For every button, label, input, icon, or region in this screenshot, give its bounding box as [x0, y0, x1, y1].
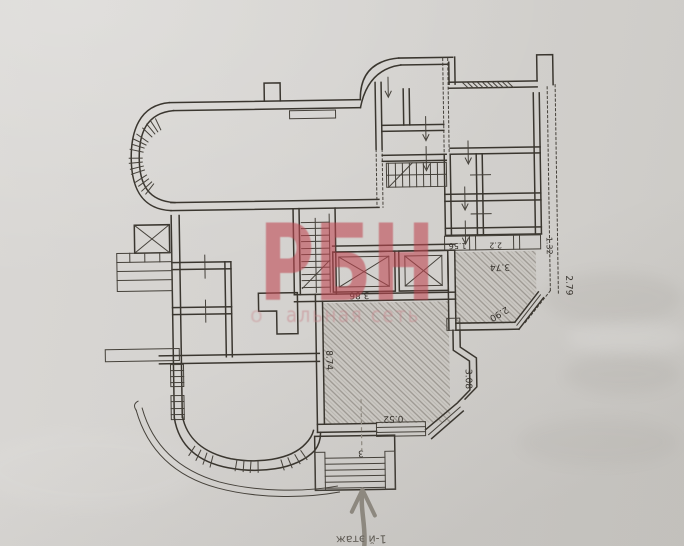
watermark: РБН о альная сеть	[250, 202, 435, 327]
dim-label-2-79: 2.79	[563, 275, 573, 295]
oval-hall	[128, 103, 175, 212]
dim-label-1-56: 1.56	[449, 241, 467, 250]
staircase-secondary	[386, 162, 446, 187]
dim-label-0-52: 0.52	[383, 413, 403, 423]
balcony	[117, 253, 173, 292]
dim-label-1-32: 1.32	[545, 237, 554, 255]
oval-window-segments	[129, 119, 162, 194]
left-shaft	[134, 225, 169, 254]
dim-label-3-74: 3.74	[490, 261, 510, 271]
watermark-subtitle: альная сеть	[286, 303, 420, 327]
chimney-notch-right	[537, 55, 553, 85]
window-sill	[289, 110, 335, 119]
dim-label-8-74: 8.74	[323, 350, 333, 370]
floor-plan-photo: 3.86 8.74 0.52 3 1.56 2.2 1.32 3.74 2.90…	[0, 0, 684, 546]
dim-label-2-2: 2.2	[489, 240, 502, 249]
watermark-subtitle-prefix: о	[250, 303, 265, 327]
entrance-porch	[315, 435, 396, 490]
chimney-notch-left	[264, 83, 280, 101]
floor-note: 1-й этаж	[336, 532, 387, 546]
dim-label-steps: 3	[358, 448, 364, 458]
right-rooms	[443, 93, 541, 235]
dim-label-3-08: 3.08	[463, 369, 473, 389]
